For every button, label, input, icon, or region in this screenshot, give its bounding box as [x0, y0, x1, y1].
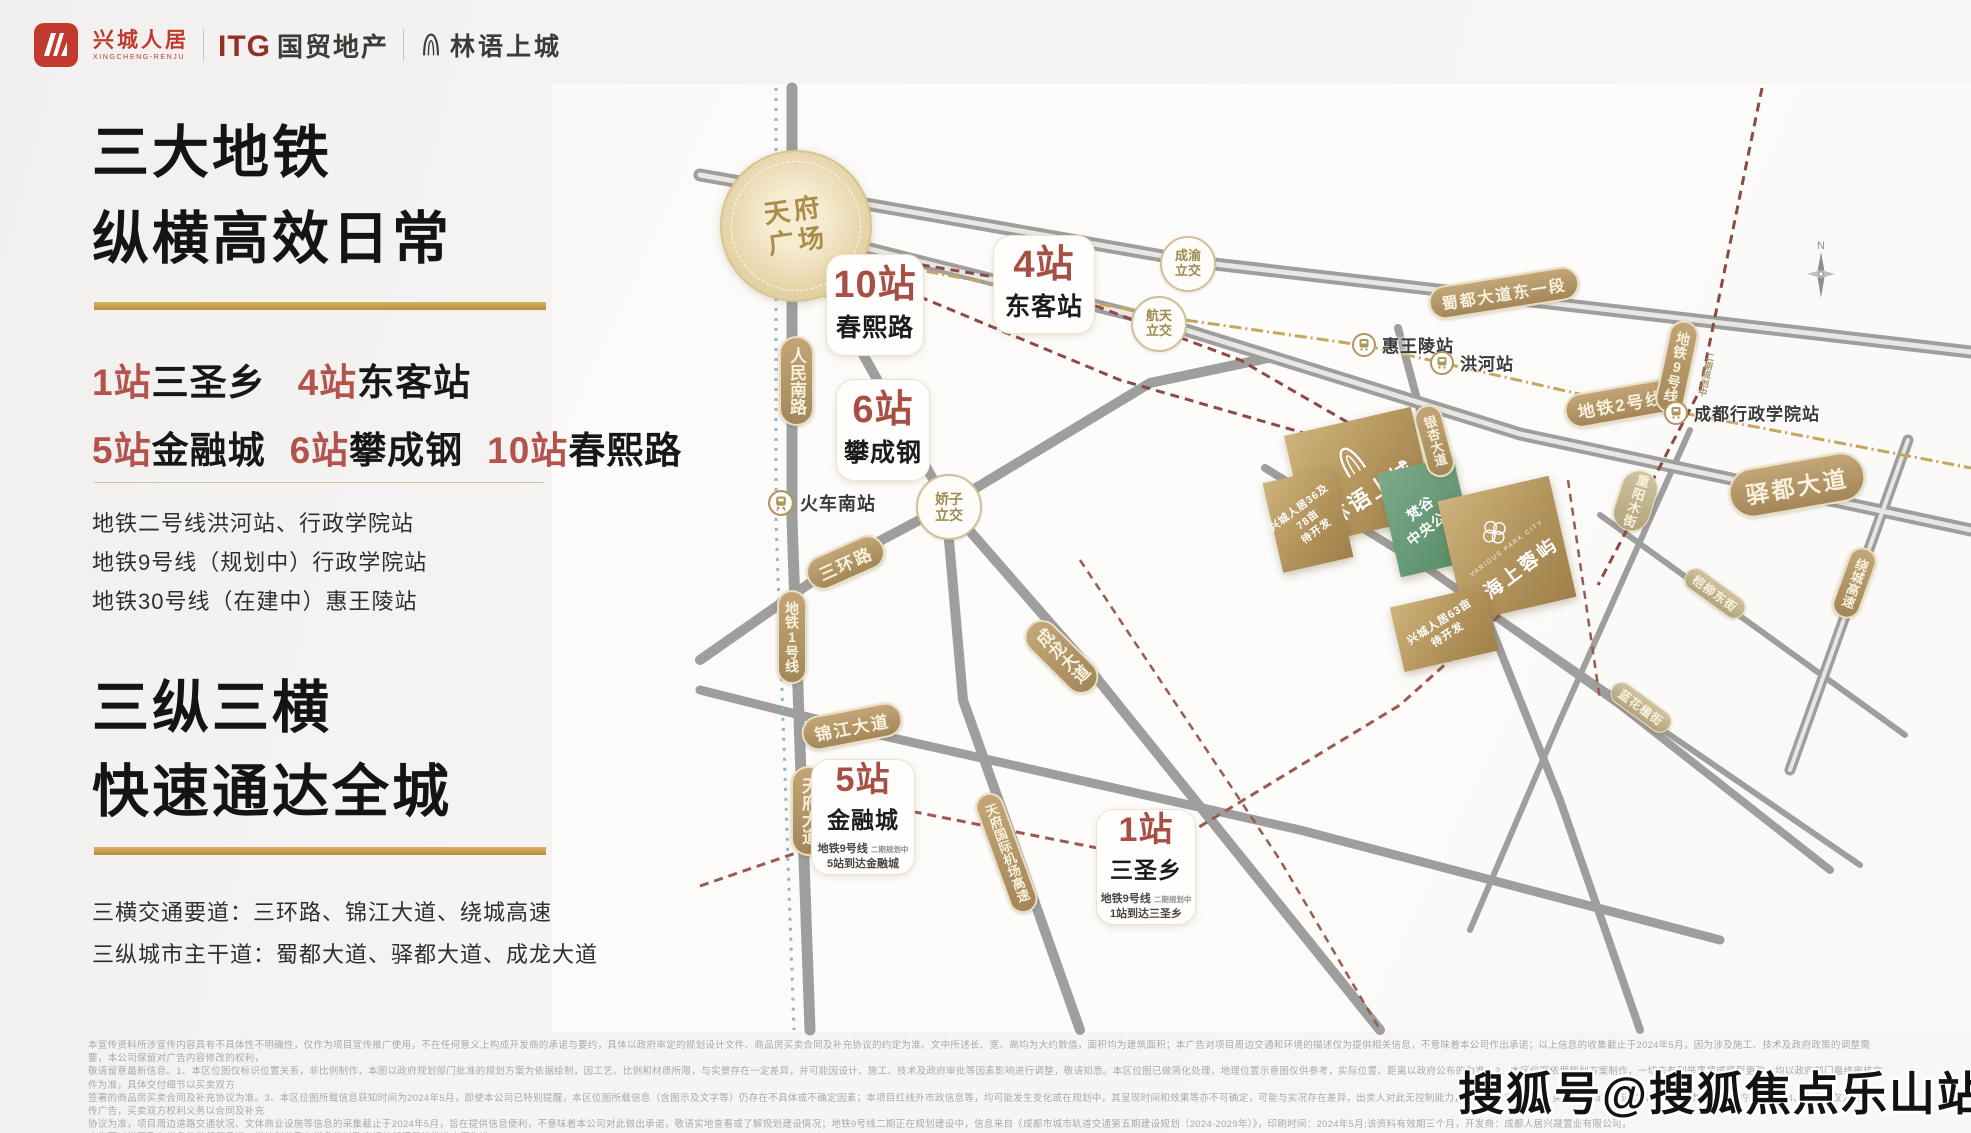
interchange-chengyu: 成渝立交 — [1160, 236, 1216, 292]
interchange-hangtian: 航天立交 — [1131, 296, 1187, 352]
badge-1-stop-sanshengxiang: 1站 三圣乡 地铁9号线 二期规划中 1站到达三圣乡 — [1096, 809, 1196, 925]
metro-icon — [768, 490, 794, 516]
station-stat: 5站 金融城 — [92, 420, 266, 474]
stat-name: 攀成钢 — [349, 420, 463, 474]
xingcheng-logo-icon — [33, 22, 79, 68]
metro-line-item: 地铁30号线（在建中）惠王陵站 — [92, 582, 427, 621]
headline-metro-line2: 纵横高效日常 — [92, 196, 452, 282]
station-xingzheng-label: 成都行政学院站 — [1694, 400, 1820, 425]
station-stat: 1站 三圣乡 — [92, 352, 266, 406]
metro-line-item: 地铁9号线（规划中）行政学院站 — [92, 543, 427, 582]
headline-metro: 三大地铁 纵横高效日常 — [92, 110, 452, 282]
brand-guomao: 国贸地产 — [277, 27, 389, 64]
badge-destination: 金融城 — [827, 801, 899, 835]
badge-count: 5站 — [836, 763, 891, 798]
brand-itg: ITG — [218, 30, 271, 64]
metro-icon — [1430, 351, 1454, 375]
metro-line-item: 地铁二号线洪河站、行政学院站 — [92, 504, 427, 543]
badge-4-stops-dongkezhan: 4站 东客站 — [993, 235, 1095, 334]
brand-xingcheng: 兴城人居 — [93, 30, 189, 51]
badge-sub-info: 地铁9号线 二期规划中 1站到达三圣乡 — [1101, 892, 1192, 921]
poster: 兴城人居 XINGCHENG-RENJU ITG 国贸地产 林语上城 三大地铁 … — [0, 0, 1971, 1133]
watermark-sohu: 搜狐号@搜狐焦点乐山站 — [1458, 1058, 1971, 1124]
road-pill-renmin-nanlu: 人民南路 — [779, 336, 814, 426]
metro-line-list: 地铁二号线洪河站、行政学院站 地铁9号线（规划中）行政学院站 地铁30号线（在建… — [92, 504, 427, 621]
stat-count: 5站 — [92, 420, 152, 474]
interchange-jiaozi: 娇子立交 — [916, 474, 982, 540]
headline-roads-line2: 快速通达全城 — [92, 750, 452, 834]
thin-rule — [94, 482, 544, 483]
brand-header: 兴城人居 XINGCHENG-RENJU ITG 国贸地产 林语上城 — [33, 22, 562, 68]
compass-rose: N — [1798, 238, 1844, 307]
station-south-railway: 火车南站 — [768, 490, 876, 516]
badge-10-stops-chunxilu: 10站 春熙路 — [826, 254, 924, 356]
stat-count: 6站 — [290, 420, 350, 474]
brand-linyu: 林语上城 — [450, 27, 562, 63]
station-honghe-label: 洪河站 — [1460, 350, 1514, 375]
road-list-item: 三横交通要道：三环路、锦江大道、绕城高速 — [92, 892, 598, 934]
badge-destination: 春熙路 — [836, 308, 914, 344]
metro-icon — [1664, 401, 1688, 425]
brand-xingcheng-en: XINGCHENG-RENJU — [93, 54, 189, 61]
badge-count: 10站 — [833, 266, 916, 305]
stat-name: 春熙路 — [568, 420, 682, 474]
station-stat: 6站 攀成钢 — [290, 420, 464, 474]
badge-sub-info: 地铁9号线 二期规划中 5站到达金融城 — [818, 842, 909, 871]
station-south-railway-label: 火车南站 — [800, 490, 876, 516]
stat-count: 4站 — [298, 352, 358, 406]
gold-rule — [94, 302, 546, 310]
badge-destination: 攀成钢 — [844, 433, 922, 469]
badge-6-stops-panchenggang: 6站 攀成钢 — [836, 379, 930, 481]
divider — [203, 29, 204, 61]
stat-count: 1站 — [92, 352, 152, 406]
road-list-item: 三纵城市主干道：蜀都大道、驿都大道、成龙大道 — [92, 934, 598, 976]
badge-5-stops-jinrongcheng: 5站 金融城 地铁9号线 二期规划中 5站到达金融城 — [811, 759, 915, 875]
stations-row-1: 1站 三圣乡 4站 东客站 — [92, 352, 471, 406]
headline-roads: 三纵三横 快速通达全城 — [92, 666, 452, 834]
gold-rule — [94, 847, 546, 855]
badge-count: 4站 — [1013, 246, 1074, 285]
badge-count: 1站 — [1119, 813, 1174, 848]
station-honghe: 洪河站 — [1430, 350, 1514, 375]
headline-roads-line1: 三纵三横 — [92, 666, 452, 750]
stat-name: 东客站 — [357, 352, 471, 406]
road-list: 三横交通要道：三环路、锦江大道、绕城高速 三纵城市主干道：蜀都大道、驿都大道、成… — [92, 892, 598, 976]
station-stat: 10站 春熙路 — [487, 420, 682, 474]
headline-metro-line1: 三大地铁 — [92, 110, 452, 196]
badge-destination: 东客站 — [1005, 287, 1083, 323]
stations-row-2: 5站 金融城 6站 攀成钢 10站 春熙路 — [92, 420, 682, 474]
stat-name: 金融城 — [152, 420, 266, 474]
station-stat: 4站 东客站 — [298, 352, 472, 406]
stat-name: 三圣乡 — [152, 352, 266, 406]
badge-count: 6站 — [852, 391, 913, 430]
stat-count: 10站 — [487, 420, 568, 474]
tianfu-square-label: 天府广场 — [761, 191, 831, 261]
station-xingzheng-xueyuan: 成都行政学院站 — [1664, 400, 1820, 425]
metro-icon — [1352, 333, 1376, 357]
divider — [403, 29, 404, 61]
metro-pill-line1: 地铁1号线 — [777, 590, 807, 684]
badge-destination: 三圣乡 — [1110, 851, 1182, 885]
compass-north-label: N — [1817, 240, 1825, 252]
linyu-logo-icon — [418, 30, 444, 60]
